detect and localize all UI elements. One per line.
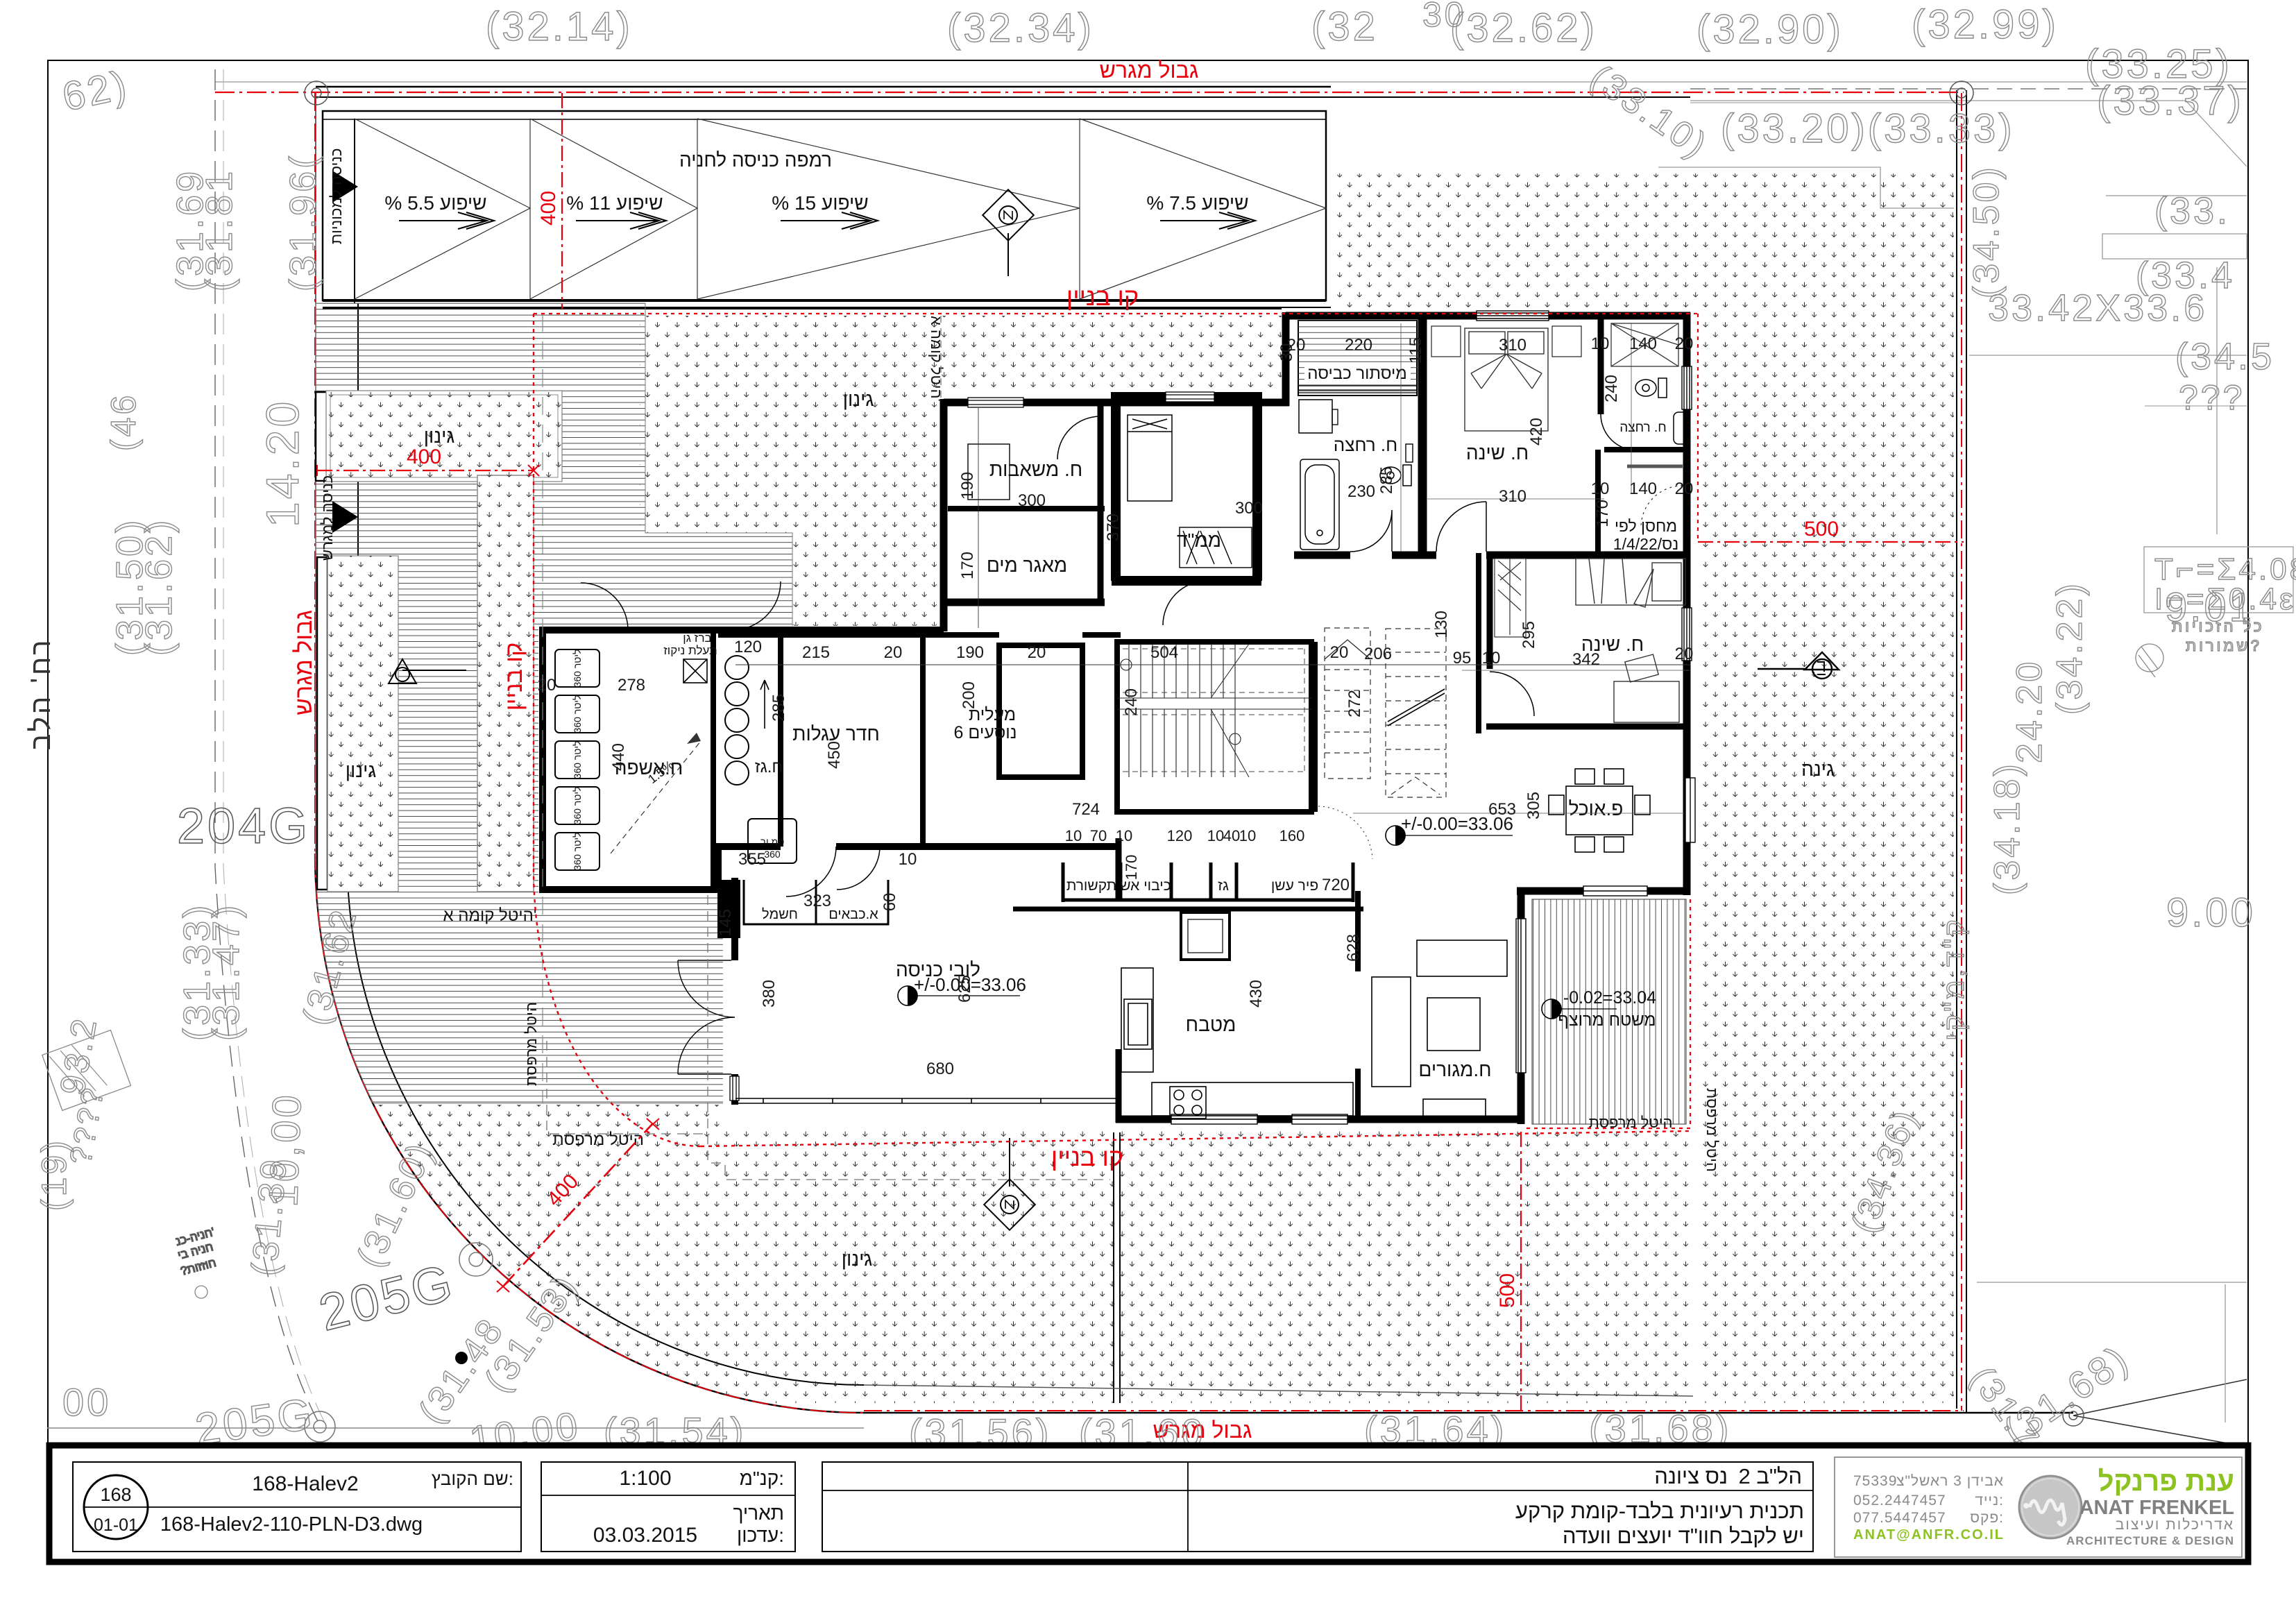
svg-text:204G: 204G [177,799,310,854]
svg-text:נס ציונה: נס ציונה [1654,1464,1728,1488]
svg-text:(34.5: (34.5 [2175,336,2274,377]
svg-text:ברז גן: ברז גן [683,631,711,645]
svg-text:60: 60 [881,893,899,912]
svg-text:168: 168 [100,1484,131,1505]
svg-text:170: 170 [1123,855,1140,881]
svg-text:נס/1/4/22: נס/1/4/22 [1613,535,1678,553]
svg-text:170: 170 [1593,500,1612,527]
svg-text:אבידן 3 ראשל"צ: אבידן 3 ראשל"צ [1896,1473,2004,1489]
svg-text:170: 170 [958,552,977,579]
svg-text:תכנית רעיונית בלבד-קומת קרקע: תכנית רעיונית בלבד-קומת קרקע [1515,1499,1804,1523]
svg-text:תעלת ניקוז: תעלת ניקוז [663,644,717,657]
svg-text:10: 10 [1591,334,1610,353]
svg-text:היטל מרפסת: היטל מרפסת [552,1130,644,1149]
svg-text:220: 220 [1345,336,1372,355]
svg-text:355: 355 [738,850,766,869]
svg-text:א.כבאים: א.כבאים [828,907,878,922]
svg-text:190: 190 [958,472,977,500]
svg-text:נייד:: נייד: [1975,1493,2004,1509]
svg-text:20: 20 [538,676,556,695]
svg-text:% 15 שיפוע: % 15 שיפוע [772,192,868,214]
svg-text:20: 20 [1028,643,1046,662]
svg-text:200: 200 [960,681,978,709]
svg-text:כל הזכויות: כל הזכויות [2172,618,2264,635]
svg-text:גינון: גינון [424,425,455,447]
svg-text:70: 70 [1090,827,1107,844]
svg-text:משטח מרוצף: משטח מרוצף [1558,1010,1656,1030]
svg-text:(31.81: (31.81 [198,169,240,291]
svg-text:400: 400 [537,191,560,226]
svg-text:-0.02=33.04: -0.02=33.04 [1563,988,1656,1008]
svg-text:140: 140 [1629,334,1657,353]
svg-text:גינון: גינון [842,1248,873,1270]
svg-text:680: 680 [926,1060,954,1078]
svg-text:יש לקבל חוו"ד יועצים וועדה: יש לקבל חוו"ד יועצים וועדה [1563,1524,1804,1548]
svg-text:20: 20 [1675,645,1694,663]
svg-text:168-Halev2-110-PLN-D3.dwg: 168-Halev2-110-PLN-D3.dwg [160,1513,423,1536]
svg-text:310: 310 [1499,487,1527,506]
svg-text:300: 300 [1235,499,1263,518]
svg-text:היטל מרפסת: היטל מרפסת [1589,1114,1673,1131]
svg-text:(32: (32 [1311,4,1378,49]
svg-text:628: 628 [1344,934,1363,962]
svg-text:9.00: 9.00 [2166,890,2256,935]
svg-text:(32.62): (32.62) [1450,6,1597,51]
svg-text:285: 285 [1377,466,1396,494]
svg-text:כניסה למכוניות: כניסה למכוניות [328,148,345,244]
svg-text:מחסן לפי: מחסן לפי [1615,517,1677,535]
svg-text:278: 278 [618,676,645,695]
svg-text:10: 10 [1239,827,1256,844]
svg-text:גינה: גינה [1801,758,1835,780]
svg-text:ח. רחצה: ח. רחצה [1334,434,1397,455]
svg-text:(32.90): (32.90) [1697,7,1844,52]
svg-text:00: 00 [62,1380,111,1424]
svg-text:300: 300 [1018,491,1046,510]
svg-text:כניסה למגרש: כניסה למגרש [318,475,336,561]
svg-text:360 ליטר: 360 ליטר [572,695,583,733]
svg-text:גבול מגרש: גבול מגרש [1100,58,1199,83]
svg-text:20: 20 [1330,643,1349,662]
svg-text:שמורות?: שמורות? [2186,637,2262,654]
svg-text:168-Halev2: 168-Halev2 [252,1472,358,1495]
svg-text:10: 10 [1591,479,1610,498]
svg-text:תאריך: תאריך [733,1502,784,1524]
svg-text:(31.96(: (31.96( [282,153,324,291]
svg-text:052.2447457: 052.2447457 [1853,1493,1946,1509]
svg-text:(34.22): (34.22) [2050,581,2090,715]
svg-text:רח' הלב: רח' הלב [26,638,56,751]
svg-text:ח. משאבות: ח. משאבות [989,459,1082,480]
svg-text:30: 30 [1277,343,1296,362]
svg-text:14.20: 14.20 [257,399,308,527]
svg-text:360 ליטר: 360 ליטר [572,741,583,779]
svg-text:190: 190 [956,643,984,662]
svg-text:504: 504 [1150,643,1178,662]
svg-text:ח.גז: ח.גז [755,758,783,776]
svg-text:% 11 שיפוע: % 11 שיפוע [566,192,663,214]
svg-text:115: 115 [1406,337,1425,364]
svg-text:430: 430 [1247,980,1266,1008]
svg-text:פיר עשן: פיר עשן [1271,878,1318,894]
svg-text:עדכון:: עדכון: [737,1524,784,1546]
svg-text:30: 30 [1422,0,1467,34]
svg-text:720: 720 [1322,876,1350,894]
svg-text:1:100: 1:100 [619,1467,671,1490]
svg-text:20: 20 [1675,334,1694,353]
svg-text:גינון: גינון [346,760,377,781]
svg-text:10: 10 [1207,827,1224,844]
svg-text:???: ??? [2179,378,2245,417]
svg-text:160: 160 [1279,827,1305,844]
svg-text:ח.מגורים: ח.מגורים [1418,1059,1491,1080]
svg-text:ענת פרנקל: ענת פרנקל [2098,1466,2234,1497]
svg-text:20: 20 [884,643,903,662]
svg-text:מטבח: מטבח [1186,1014,1236,1035]
svg-text:גז: גז [1218,878,1229,894]
svg-text:272: 272 [1345,690,1364,717]
svg-text:מיסתור כביסה: מיסתור כביסה [1307,364,1406,383]
svg-text:240: 240 [1602,375,1621,402]
svg-text:140: 140 [1629,479,1657,498]
svg-text:היטל קומה א': היטל קומה א' [443,906,537,925]
svg-text:(31.62): (31.62) [138,518,180,656]
svg-text:360: 360 [764,849,781,860]
svg-text:ממ"ד: ממ"ד [1177,529,1221,551]
svg-text:625: 625 [955,975,974,1003]
svg-text:% 5.5 שיפוע: % 5.5 שיפוע [384,192,486,214]
svg-text:(33.37): (33.37) [2097,78,2244,124]
svg-text:היטל מרפסת: היטל מרפסת [522,1002,540,1086]
svg-text:724: 724 [1072,800,1100,819]
svg-text:230: 230 [1347,482,1375,501]
svg-text:323: 323 [803,892,831,910]
svg-text:היטל מרפסת: היטל מרפסת [1703,1088,1721,1172]
svg-text:רמפה כניסה לחניה: רמפה כניסה לחניה [679,149,832,171]
svg-text:(46: (46 [104,393,143,451]
svg-text:145: 145 [716,909,735,937]
svg-text:תקשורת: תקשורת [1066,878,1116,894]
svg-text:גבול מגרש: גבול מגרש [291,610,317,715]
svg-text:360 ליטר: 360 ליטר [572,833,583,871]
svg-text:שם הקובץ:: שם הקובץ: [432,1468,513,1489]
svg-text:טמ.וב: טמ.וב [760,836,785,847]
svg-text:גינון: גינון [843,389,874,410]
svg-text:440: 440 [609,743,628,771]
svg-text:24.20: 24.20 [2009,659,2050,763]
svg-text:10: 10 [1116,827,1132,844]
svg-text:03.03.2015: 03.03.2015 [593,1524,697,1547]
svg-text:(19): (19) [35,1138,74,1211]
svg-text:I⌐=Σ0.4ε: I⌐=Σ0.4ε [2154,582,2296,616]
svg-text:400: 400 [407,445,441,468]
svg-text:120: 120 [1167,827,1193,844]
svg-text:מאגר מים: מאגר מים [987,554,1067,576]
svg-text:130: 130 [1432,611,1451,638]
svg-text:היטל קומה א': היטל קומה א' [928,316,945,402]
svg-text:310: 310 [1499,336,1527,355]
svg-text:420: 420 [1527,418,1546,445]
svg-text:חשמל: חשמל [762,907,798,922]
svg-text:קו בניין: קו בניין [501,643,527,711]
svg-text:206: 206 [1364,645,1392,663]
svg-text:305: 305 [1524,792,1543,819]
svg-text:500: 500 [1804,518,1839,541]
svg-text:קו בניין: קו בניין [1066,282,1139,311]
svg-text:פ.אוכל: פ.אוכל [1569,798,1624,819]
svg-text:10: 10 [1065,827,1082,844]
svg-text:380: 380 [760,980,779,1008]
svg-text:ח. רחצה: ח. רחצה [1619,420,1667,435]
svg-text:(34.18): (34.18) [1987,761,2027,895]
svg-text:342: 342 [1572,650,1600,669]
svg-text:(34.50): (34.50) [1966,164,2007,298]
svg-text:קו בניין: קו בניין [1051,1143,1123,1171]
svg-text:אדריכלות ועיצוב: אדריכלות ועיצוב [2116,1517,2234,1533]
svg-text:(33.20)(33.33): (33.20)(33.33) [1721,106,2015,151]
svg-text:קנ"מ:: קנ"מ: [740,1468,784,1489]
svg-text:285: 285 [769,694,788,722]
svg-text:215: 215 [802,643,830,662]
svg-text:295: 295 [1520,621,1538,649]
svg-text:077.5447457: 077.5447457 [1853,1510,1946,1526]
svg-text:6 נוסעים: 6 נוסעים [954,723,1017,742]
svg-text:10: 10 [899,850,917,869]
svg-text:20: 20 [1675,479,1694,498]
svg-text:ARCHITECTURE & DESIGN: ARCHITECTURE & DESIGN [2066,1534,2234,1547]
svg-text:33.42X33.6: 33.42X33.6 [1988,287,2207,329]
svg-text:ANAT FRENKEL: ANAT FRENKEL [2080,1497,2234,1519]
svg-text:01-01: 01-01 [94,1515,138,1535]
svg-text:240: 240 [1122,688,1141,716]
svg-text:(32.34): (32.34) [947,6,1094,51]
svg-text:360 ליטר: 360 ליטר [572,649,583,688]
svg-text:הל"ב 2: הל"ב 2 [1739,1464,1802,1488]
svg-text:% 7.5 שיפוע: % 7.5 שיפוע [1146,192,1248,214]
svg-text:ANAT@ANFR.CO.IL: ANAT@ANFR.CO.IL [1853,1527,2005,1543]
svg-text:450: 450 [825,741,844,769]
svg-text:360 ליטר: 360 ליטר [572,787,583,825]
svg-text:75339: 75339 [1853,1473,1897,1489]
svg-text:120: 120 [734,638,762,656]
svg-text:ק"ד,מ"קי: ק"ד,מ"קי [1939,917,1970,1041]
svg-text:(31.47): (31.47) [205,903,247,1041]
svg-text:(33.: (33. [2154,190,2230,232]
svg-text:פקס:: פקס: [1970,1510,2004,1526]
svg-text:(32.14): (32.14) [486,4,633,49]
svg-text:500: 500 [1496,1273,1519,1308]
svg-text:T⌐=Σ4.08: T⌐=Σ4.08 [2154,552,2296,586]
svg-text:653: 653 [1488,800,1516,819]
svg-text:ח. שינה: ח. שינה [1466,442,1529,464]
svg-text:10: 10 [1482,649,1501,668]
svg-text:40: 40 [1223,827,1240,844]
svg-text:95: 95 [1453,649,1472,668]
svg-text:(32.99): (32.99) [1912,2,2059,47]
svg-text:370: 370 [1104,513,1123,541]
